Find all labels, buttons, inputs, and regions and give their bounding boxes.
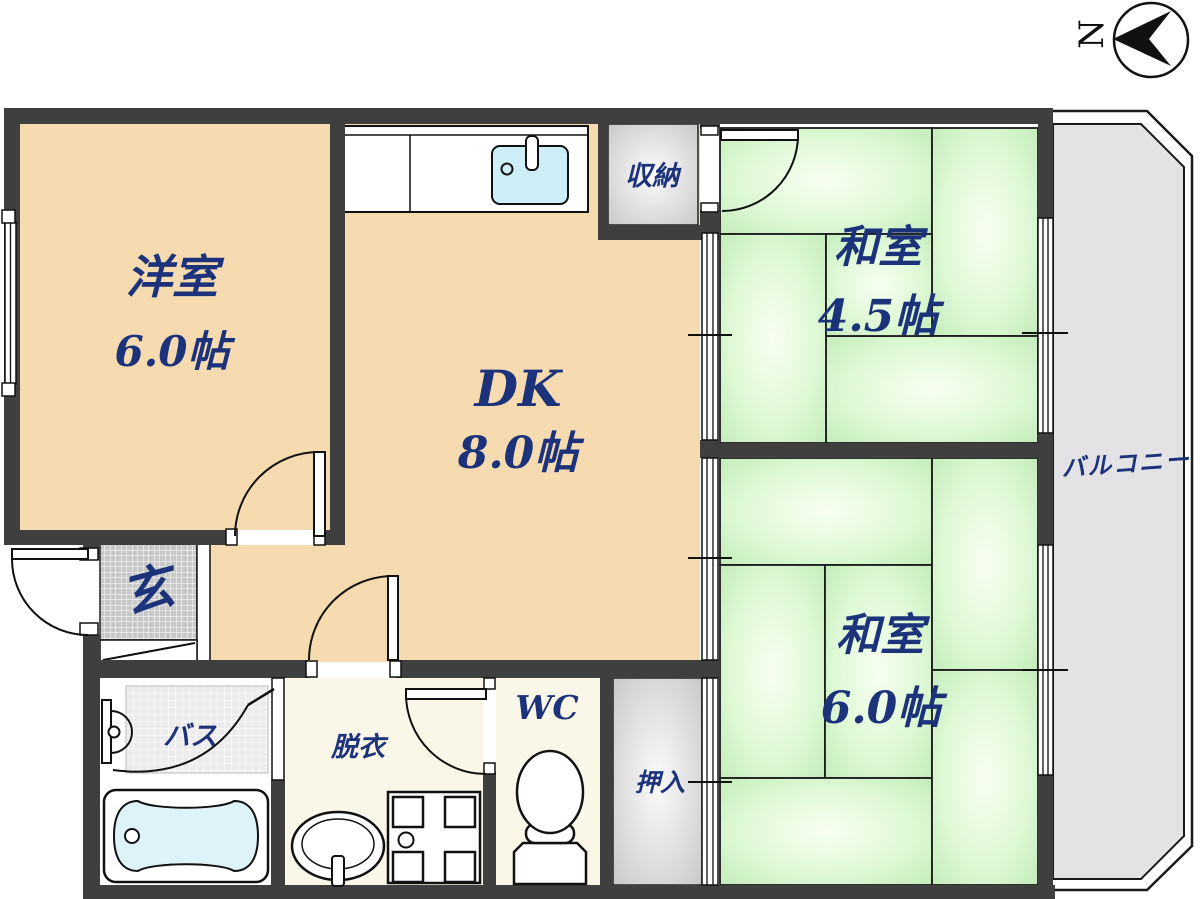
jamb [80, 623, 98, 635]
floor-plan-drawing: 洋室 6.0帖 DK 8.0帖 和室 4.5帖 和室 6.0帖 収納 押入 玄 … [0, 0, 1200, 899]
jamb [306, 661, 317, 677]
door-entrance [12, 549, 88, 635]
toilet-tank [514, 843, 586, 884]
jamb [484, 763, 495, 774]
toilet [514, 751, 586, 884]
jamb [2, 210, 15, 223]
western-room-size: 6.0帖 [114, 327, 235, 376]
window-washitsu60 [1038, 545, 1053, 775]
wall-storage-left [598, 124, 608, 225]
wall-washroom-top-right [396, 660, 720, 678]
jamb [701, 203, 718, 212]
pan-drain [399, 833, 414, 848]
sink-faucet [526, 136, 538, 170]
storage-label: 収納 [625, 161, 682, 192]
balcony-floor [1053, 124, 1184, 879]
entrance-frame-strip [197, 543, 210, 662]
tatami-mat [932, 458, 1038, 670]
jamb [484, 678, 495, 689]
jamb [2, 383, 15, 396]
bathtub-drain [125, 829, 139, 843]
dressing-room-label: 脱衣 [330, 732, 389, 763]
wall-left-lower-b [83, 635, 100, 899]
tatami-mat [826, 336, 1038, 443]
jamb [390, 661, 401, 677]
washitsu60-label: 和室 [836, 610, 931, 661]
wall-top [4, 108, 1053, 124]
wall-wc-left [483, 772, 496, 885]
wall-washroom-top-left [100, 660, 308, 678]
wall-western-bottom [4, 530, 232, 545]
tatami-mat [720, 128, 932, 234]
tatami-mat [720, 778, 932, 885]
washbasin-faucet [332, 856, 344, 886]
wall-bottom [83, 885, 1055, 899]
wall-east-mid2 [700, 440, 720, 458]
washing-machine-pan [388, 792, 480, 883]
wall-right-2 [1038, 433, 1053, 545]
kitchen-unit [342, 126, 588, 212]
compass: N [1072, 3, 1188, 77]
tatami-mat [720, 565, 825, 778]
wall-east-mid1 [700, 210, 720, 233]
tatami-mat [932, 670, 1038, 885]
wall-bath-right [271, 780, 285, 885]
bath-doorway [272, 678, 284, 780]
tatami-mat [825, 565, 932, 778]
toilet-label: WC [515, 688, 578, 727]
wall-right-3 [1038, 775, 1053, 899]
bath-label: バス [163, 721, 217, 752]
tatami-mat [720, 458, 932, 565]
washitsu45-size: 4.5帖 [818, 291, 946, 342]
dk-label: DK [473, 359, 564, 418]
wall-western-bottom-right [325, 530, 345, 545]
wall-wc-right [600, 660, 613, 885]
western-room-label: 洋室 [126, 250, 225, 304]
window-washitsu45 [1038, 218, 1053, 433]
sliding-door-dk-washitsu45 [702, 233, 718, 440]
toilet-bowl [517, 751, 583, 833]
north-label: N [1072, 19, 1112, 49]
washitsu45-label: 和室 [834, 222, 929, 273]
bath-heater-knob [109, 727, 120, 738]
wall-western-dk [330, 124, 345, 545]
washitsu60-size: 6.0帖 [821, 683, 949, 734]
tatami-mat [720, 234, 826, 443]
balcony-area [1053, 111, 1192, 890]
dk-size: 8.0帖 [457, 428, 586, 479]
wall-right-1 [1038, 108, 1053, 218]
floor-plan: 洋室 6.0帖 DK 8.0帖 和室 4.5帖 和室 6.0帖 収納 押入 玄 … [0, 0, 1200, 899]
wall-between-japanese-rooms [720, 443, 1053, 458]
wall-east-top [700, 108, 720, 128]
closet-label: 押入 [635, 768, 685, 797]
tatami-mat [932, 128, 1038, 336]
jamb [701, 126, 718, 135]
